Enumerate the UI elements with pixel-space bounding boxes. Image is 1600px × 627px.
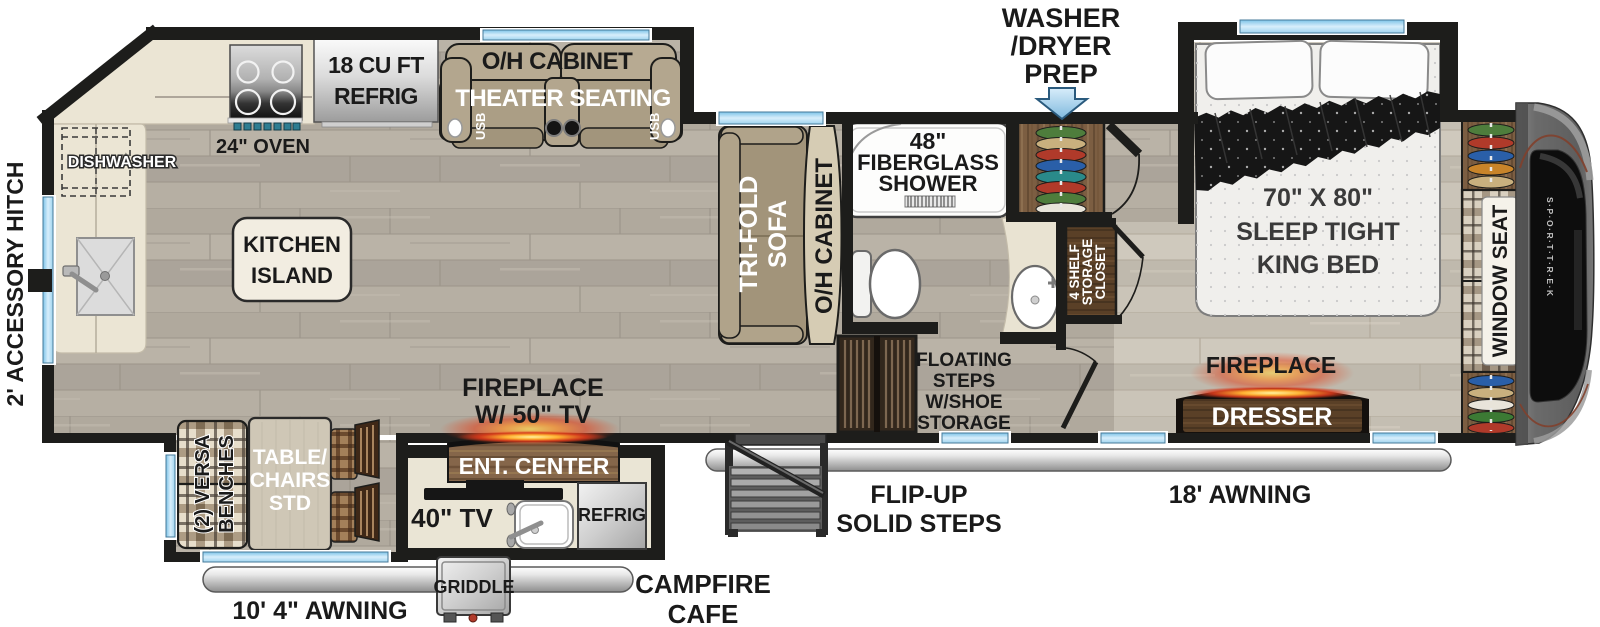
svg-text:SHOWER: SHOWER (879, 171, 978, 196)
svg-text:/DRYER: /DRYER (1010, 31, 1111, 61)
svg-text:O/H CABINET: O/H CABINET (482, 48, 633, 75)
svg-text:40" TV: 40" TV (411, 503, 493, 533)
svg-text:18 CU FT: 18 CU FT (328, 52, 424, 78)
svg-text:CHAIRS: CHAIRS (250, 469, 331, 492)
svg-text:STEPS: STEPS (933, 371, 995, 392)
svg-text:REFRIG: REFRIG (334, 83, 418, 109)
svg-text:SOFA: SOFA (764, 200, 792, 268)
svg-text:THEATER SEATING: THEATER SEATING (455, 85, 671, 112)
svg-text:10' 4" AWNING: 10' 4" AWNING (232, 597, 407, 625)
svg-text:GRIDDLE: GRIDDLE (434, 577, 515, 597)
svg-text:TABLE/: TABLE/ (253, 446, 327, 469)
svg-text:DISHWASHER: DISHWASHER (68, 154, 177, 171)
svg-text:FLIP-UP: FLIP-UP (870, 481, 967, 509)
svg-text:USB: USB (473, 113, 488, 140)
svg-text:2' ACCESSORY HITCH: 2' ACCESSORY HITCH (2, 162, 28, 407)
svg-text:FIREPLACE: FIREPLACE (462, 374, 604, 402)
svg-text:USB: USB (647, 113, 662, 140)
svg-text:CAFE: CAFE (668, 599, 739, 627)
svg-text:SLEEP TIGHT: SLEEP TIGHT (1236, 218, 1399, 246)
svg-text:W/ 50" TV: W/ 50" TV (475, 401, 591, 429)
svg-text:W/SHOE: W/SHOE (925, 392, 1002, 413)
svg-text:DRESSER: DRESSER (1212, 403, 1333, 431)
svg-text:O/H CABINET: O/H CABINET (811, 158, 838, 314)
svg-text:CAMPFIRE: CAMPFIRE (635, 569, 771, 599)
svg-text:ENT. CENTER: ENT. CENTER (459, 453, 610, 479)
svg-text:WASHER: WASHER (1002, 3, 1121, 33)
svg-text:TRI-FOLD: TRI-FOLD (735, 176, 763, 293)
svg-text:SOLID STEPS: SOLID STEPS (836, 510, 1001, 538)
svg-text:WINDOW SEAT: WINDOW SEAT (1489, 205, 1512, 358)
svg-text:ISLAND: ISLAND (251, 263, 333, 288)
svg-text:S·P·O·R·T·T·R·E·K: S·P·O·R·T·T·R·E·K (1545, 197, 1555, 298)
svg-text:FLOATING: FLOATING (916, 350, 1012, 371)
svg-text:STORAGE: STORAGE (917, 413, 1011, 434)
svg-text:FIREPLACE: FIREPLACE (1206, 352, 1336, 378)
svg-text:CLOSET: CLOSET (1093, 244, 1108, 300)
svg-text:REFRIG: REFRIG (578, 505, 646, 525)
svg-text:BENCHES: BENCHES (216, 435, 238, 533)
svg-text:(2) VERSA: (2) VERSA (192, 435, 214, 534)
svg-text:STD: STD (269, 492, 311, 515)
svg-text:PREP: PREP (1024, 59, 1098, 89)
svg-text:70" X 80": 70" X 80" (1263, 184, 1373, 212)
svg-text:24" OVEN: 24" OVEN (216, 136, 310, 158)
svg-text:18' AWNING: 18' AWNING (1169, 481, 1312, 509)
svg-text:KING BED: KING BED (1257, 251, 1379, 279)
svg-text:KITCHEN: KITCHEN (243, 232, 341, 257)
